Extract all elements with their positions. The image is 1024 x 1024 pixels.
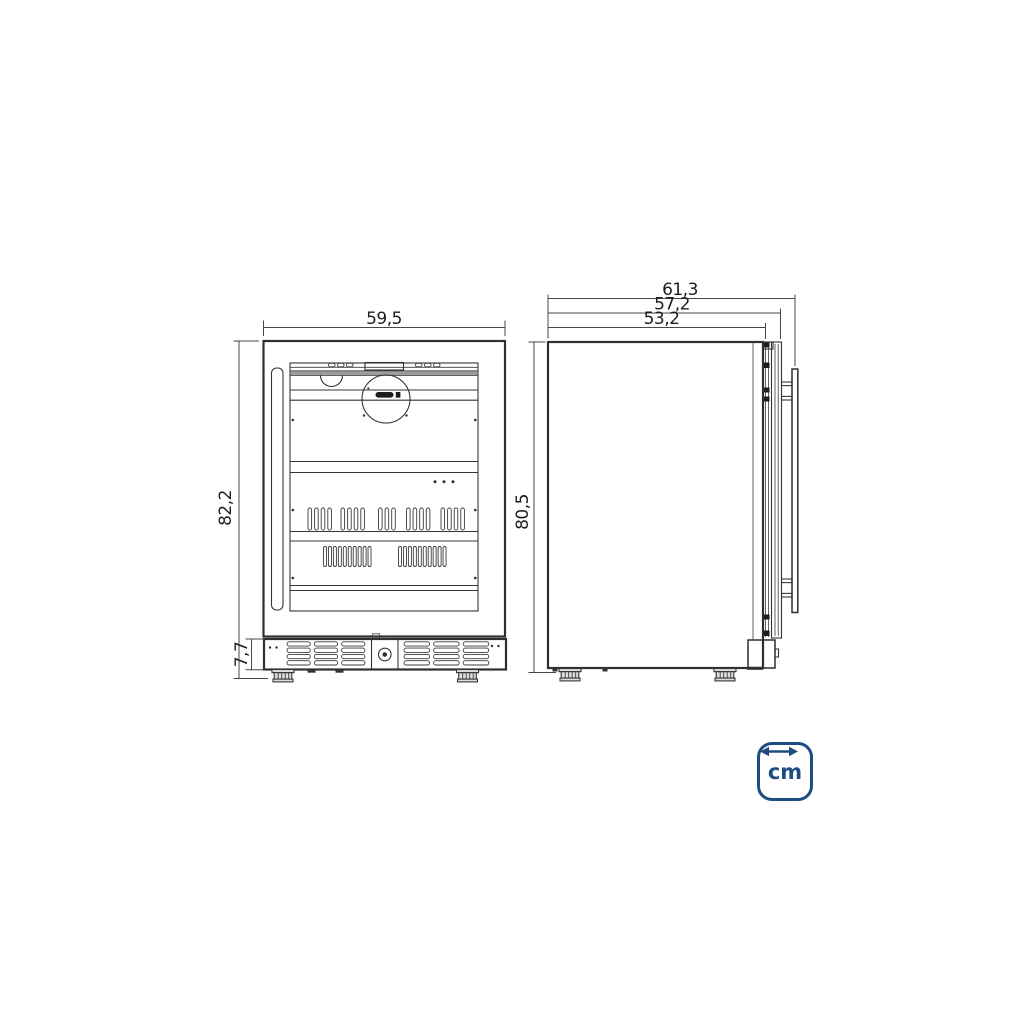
front-door-handle	[272, 368, 284, 610]
base-grille-right	[404, 642, 489, 665]
interior-arc	[321, 376, 343, 387]
dim-label-side-height: 80,5	[513, 494, 533, 530]
unit-badge-label: cm	[768, 762, 802, 782]
interior-fan	[362, 375, 410, 423]
dim-front-height: 82,2	[216, 341, 268, 679]
vent-slots-row1	[308, 508, 464, 530]
unit-badge: cm	[757, 742, 813, 801]
base-grille-left	[287, 642, 365, 665]
dim-label-front-height: 82,2	[216, 490, 236, 526]
side-handle	[782, 369, 798, 613]
dim-front-width: 59,5	[264, 309, 506, 336]
front-door-outline	[264, 341, 506, 637]
dim-label-front-width: 59,5	[366, 309, 402, 329]
side-door	[763, 342, 782, 638]
vent-slots-row2	[324, 547, 447, 567]
front-inner-panel	[290, 363, 478, 612]
side-view: 61,3 57,2 53,2 80,5	[513, 280, 798, 681]
side-feet	[553, 669, 737, 681]
brand-plate	[376, 392, 401, 398]
refrigerator-dimension-drawing: 59,5 82,2 7,7	[0, 0, 1024, 1024]
dim-label-side-depth-cabinet: 53,2	[644, 309, 680, 329]
front-view: 59,5 82,2 7,7	[216, 309, 506, 682]
dim-side-height: 80,5	[513, 342, 556, 673]
dim-front-base-height: 7,7	[232, 639, 264, 670]
dimension-drawing-page: 59,5 82,2 7,7	[0, 0, 1024, 1024]
dim-label-front-base-height: 7,7	[232, 642, 252, 668]
panel-screws	[292, 419, 477, 580]
side-body	[548, 342, 763, 668]
front-base	[264, 634, 506, 670]
control-display	[365, 363, 404, 371]
front-feet	[272, 670, 479, 682]
left-right-arrow-icon	[760, 745, 798, 758]
top-vent-ovals	[329, 363, 441, 367]
